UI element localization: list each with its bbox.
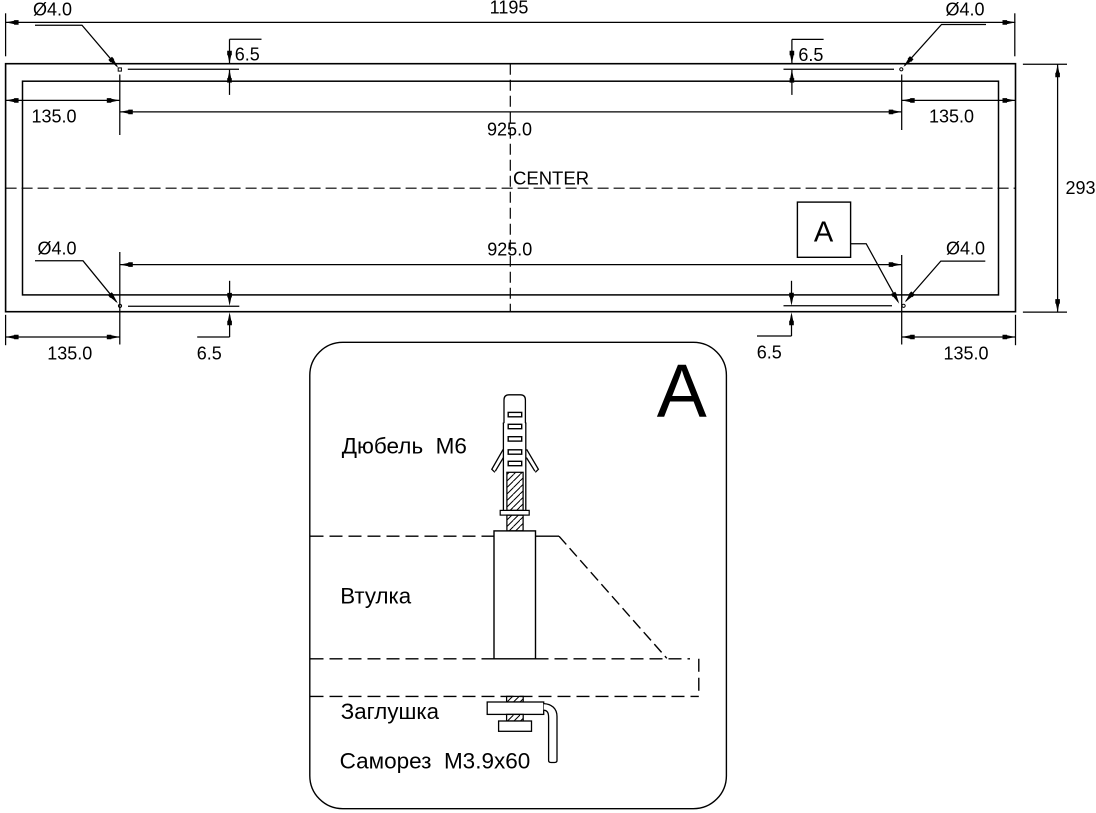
svg-text:Дюбель М6: Дюбель М6	[342, 434, 467, 459]
svg-text:Заглушка: Заглушка	[341, 699, 440, 724]
svg-text:Саморез М3.9х60: Саморез М3.9х60	[340, 749, 531, 774]
svg-text:6.5: 6.5	[757, 343, 782, 363]
svg-text:6.5: 6.5	[197, 343, 222, 363]
svg-text:Ø4.0: Ø4.0	[33, 0, 72, 20]
svg-text:293: 293	[1066, 178, 1096, 198]
svg-text:Ø4.0: Ø4.0	[946, 0, 985, 19]
svg-text:135.0: 135.0	[929, 107, 974, 127]
svg-text:Ø4.0: Ø4.0	[38, 239, 77, 259]
svg-text:Втулка: Втулка	[340, 583, 412, 608]
svg-text:135.0: 135.0	[943, 343, 988, 363]
svg-text:6.5: 6.5	[235, 45, 260, 65]
svg-text:925.0: 925.0	[487, 240, 532, 260]
svg-text:1195: 1195	[490, 0, 529, 18]
svg-text:135.0: 135.0	[31, 106, 76, 126]
svg-text:A: A	[657, 348, 707, 432]
svg-text:6.5: 6.5	[798, 45, 823, 65]
svg-text:925.0: 925.0	[487, 119, 532, 139]
svg-text:A: A	[814, 216, 834, 248]
svg-text:CENTER: CENTER	[513, 168, 589, 189]
svg-text:135.0: 135.0	[47, 343, 92, 363]
svg-text:Ø4.0: Ø4.0	[946, 239, 985, 259]
